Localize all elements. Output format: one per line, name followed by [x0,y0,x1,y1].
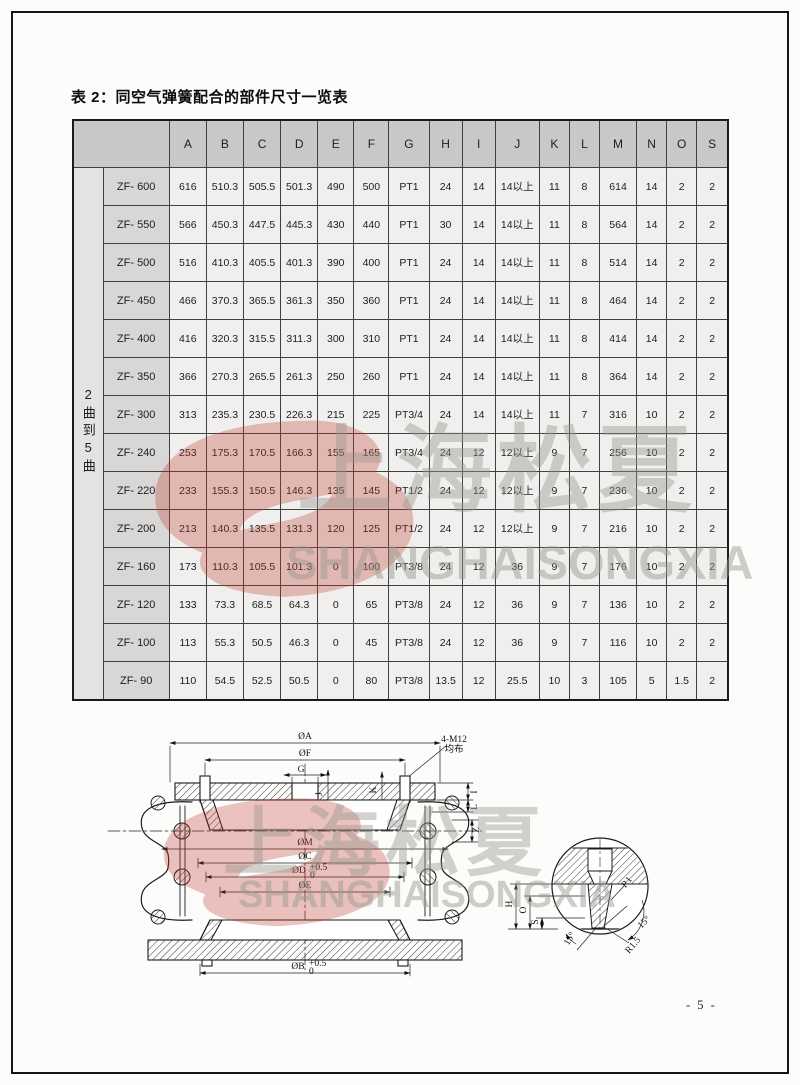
detail-label-angle1: 15° [562,930,578,947]
model-cell: ZF- 240 [103,434,169,472]
data-cell: 36 [495,548,539,586]
data-cell: 2 [667,396,697,434]
table-row: 2曲到5曲ZF- 600616510.3505.5501.3490500PT12… [73,168,728,206]
data-cell: 501.3 [281,168,318,206]
data-cell: 14以上 [495,168,539,206]
data-cell: 315.5 [243,320,280,358]
data-cell: 2 [667,548,697,586]
data-cell: PT1/2 [389,510,429,548]
data-cell: 110.3 [206,548,243,586]
dim-label-l: L [470,804,480,810]
data-cell: 54.5 [206,662,243,701]
data-cell: 8 [569,282,599,320]
data-cell: 464 [599,282,636,320]
data-cell: 14 [637,358,667,396]
data-cell: 2 [667,168,697,206]
data-cell: 9 [539,586,569,624]
table-row: ZF- 160173110.3105.5101.30100PT3/8241236… [73,548,728,586]
data-cell: PT1 [389,244,429,282]
data-cell: 24 [429,586,462,624]
data-cell: 14 [462,320,495,358]
data-cell: 46.3 [281,624,318,662]
data-cell: 2 [667,244,697,282]
data-cell: 12 [462,624,495,662]
dim-label-d-sub: 0 [310,871,315,881]
data-cell: 2 [697,396,728,434]
data-cell: 14 [462,396,495,434]
data-cell: 2 [697,244,728,282]
data-cell: 505.5 [243,168,280,206]
data-cell: 226.3 [281,396,318,434]
dim-label-g: G [298,765,305,775]
data-cell: 10 [637,624,667,662]
data-cell: 116 [599,624,636,662]
data-cell: 366 [169,358,206,396]
data-cell: 350 [318,282,354,320]
table-row: ZF- 10011355.350.546.3045PT3/82412369711… [73,624,728,662]
col-header: C [243,120,280,168]
data-cell: 215 [318,396,354,434]
data-cell: 24 [429,282,462,320]
data-cell: 310 [354,320,389,358]
data-cell: 311.3 [281,320,318,358]
data-cell: 10 [637,472,667,510]
bellows-left [141,796,192,924]
data-cell: 7 [569,396,599,434]
dim-label-i: I [470,790,480,793]
data-cell: 2 [667,434,697,472]
data-cell: 14 [637,282,667,320]
data-cell: 14 [637,244,667,282]
col-header: D [281,120,318,168]
data-cell: 73.3 [206,586,243,624]
data-cell: 313 [169,396,206,434]
data-cell: 11 [539,320,569,358]
data-cell: 466 [169,282,206,320]
data-cell: 410.3 [206,244,243,282]
data-cell: 10 [637,396,667,434]
data-cell: 230.5 [243,396,280,434]
data-cell: 7 [569,434,599,472]
dim-label-m: ØM [297,838,313,848]
data-cell: 401.3 [281,244,318,282]
col-header: F [354,120,389,168]
table-row: ZF- 300313235.3230.5226.3215225PT3/42414… [73,396,728,434]
data-cell: 3 [569,662,599,701]
data-cell: 320.3 [206,320,243,358]
data-cell: PT3/8 [389,662,429,701]
data-cell: 135 [318,472,354,510]
model-cell: ZF- 120 [103,586,169,624]
data-cell: PT3/4 [389,396,429,434]
data-cell: 30 [429,206,462,244]
data-cell: 235.3 [206,396,243,434]
bolt-note-line1: 4-M12 [441,735,467,745]
data-cell: 14以上 [495,206,539,244]
data-cell: 2 [667,320,697,358]
data-cell: 68.5 [243,586,280,624]
data-cell: 140.3 [206,510,243,548]
data-cell: 175.3 [206,434,243,472]
data-cell: 8 [569,320,599,358]
data-cell: 0 [318,662,354,701]
data-cell: PT1 [389,168,429,206]
data-cell: 360 [354,282,389,320]
data-cell: 155.3 [206,472,243,510]
data-cell: 14 [462,244,495,282]
data-cell: 2 [667,586,697,624]
col-header: O [667,120,697,168]
bolt-note-line2: 均布 [444,743,463,755]
model-cell: ZF- 500 [103,244,169,282]
data-cell: 0 [318,624,354,662]
data-cell: 10 [539,662,569,701]
data-cell: 5 [637,662,667,701]
data-cell: 65 [354,586,389,624]
dim-label-e: ØE [299,881,312,891]
data-cell: 2 [667,206,697,244]
detail-label-r15: R1.5 [624,935,644,956]
model-cell: ZF- 550 [103,206,169,244]
data-cell: 45 [354,624,389,662]
data-cell: 25.5 [495,662,539,701]
data-cell: 36 [495,624,539,662]
data-cell: 270.3 [206,358,243,396]
model-cell: ZF- 400 [103,320,169,358]
table-row: ZF- 450466370.3365.5361.3350360PT1241414… [73,282,728,320]
data-cell: 52.5 [243,662,280,701]
data-cell: 12 [462,472,495,510]
dim-label-z: Z [472,827,482,833]
row-group-label-text: 2曲到5曲 [79,387,98,476]
data-cell: 510.3 [206,168,243,206]
row-group-label: 2曲到5曲 [73,168,103,701]
data-cell: 370.3 [206,282,243,320]
data-cell: 9 [539,624,569,662]
data-cell: 101.3 [281,548,318,586]
data-cell: 12以上 [495,510,539,548]
data-cell: 2 [697,624,728,662]
data-cell: 516 [169,244,206,282]
data-cell: 2 [667,282,697,320]
data-cell: 9 [539,548,569,586]
data-cell: 9 [539,472,569,510]
model-cell: ZF- 100 [103,624,169,662]
data-cell: 10 [637,434,667,472]
data-cell: 120 [318,510,354,548]
data-cell: 24 [429,548,462,586]
data-cell: 7 [569,586,599,624]
data-cell: PT1 [389,282,429,320]
data-cell: 24 [429,320,462,358]
table-row: ZF- 500516410.3405.5401.3390400PT1241414… [73,244,728,282]
col-header: B [206,120,243,168]
data-cell: 1.5 [667,662,697,701]
data-cell: 405.5 [243,244,280,282]
data-cell: 2 [697,586,728,624]
data-cell: 155 [318,434,354,472]
data-cell: 24 [429,358,462,396]
col-header: G [389,120,429,168]
dim-label-j: J [315,792,325,796]
data-cell: 261.3 [281,358,318,396]
air-spring-drawing: ØA ØF G 4-M12 均布 J [80,728,760,983]
data-cell: 390 [318,244,354,282]
data-cell: 14 [637,320,667,358]
data-cell: 614 [599,168,636,206]
data-cell: 2 [697,548,728,586]
col-header: K [539,120,569,168]
data-cell: 11 [539,168,569,206]
data-cell: 7 [569,510,599,548]
data-cell: 110 [169,662,206,701]
data-cell: 236 [599,472,636,510]
data-cell: 12 [462,662,495,701]
data-cell: 213 [169,510,206,548]
col-header: I [462,120,495,168]
model-cell: ZF- 220 [103,472,169,510]
data-cell: 12 [462,586,495,624]
data-cell: 2 [697,282,728,320]
spec-table: ABCDEFGHIJKLMNOS 2曲到5曲ZF- 600616510.3505… [72,119,729,701]
data-cell: 50.5 [281,662,318,701]
page-number: - 5 - [686,998,717,1013]
data-cell: 11 [539,206,569,244]
data-cell: 7 [569,548,599,586]
data-cell: 12以上 [495,434,539,472]
data-cell: 440 [354,206,389,244]
data-cell: 250 [318,358,354,396]
data-cell: 447.5 [243,206,280,244]
data-cell: 24 [429,168,462,206]
data-cell: 265.5 [243,358,280,396]
data-cell: 490 [318,168,354,206]
data-cell: 253 [169,434,206,472]
table-row: ZF- 400416320.3315.5311.3300310PT1241414… [73,320,728,358]
data-cell: 2 [697,434,728,472]
data-cell: 14以上 [495,358,539,396]
data-cell: 2 [697,472,728,510]
data-cell: 400 [354,244,389,282]
data-cell: 7 [569,624,599,662]
dim-label-f: ØF [299,749,311,759]
data-cell: 361.3 [281,282,318,320]
data-cell: 7 [569,472,599,510]
data-cell: 113 [169,624,206,662]
data-cell: 260 [354,358,389,396]
data-cell: 2 [667,624,697,662]
data-cell: 2 [667,510,697,548]
table-row: ZF- 550566450.3447.5445.3430440PT1301414… [73,206,728,244]
data-cell: PT3/8 [389,548,429,586]
data-cell: 24 [429,434,462,472]
data-cell: 125 [354,510,389,548]
data-cell: 316 [599,396,636,434]
bellows-right [418,796,469,924]
data-cell: 135.5 [243,510,280,548]
dim-label-b-sub: 0 [309,967,314,977]
table-row: ZF- 350366270.3265.5261.3250260PT1241414… [73,358,728,396]
data-cell: 2 [697,168,728,206]
col-header: E [318,120,354,168]
data-cell: 170.5 [243,434,280,472]
col-header: S [697,120,728,168]
main-section-view: ØA ØF G 4-M12 均布 J [108,732,482,977]
data-cell: 430 [318,206,354,244]
col-header: J [495,120,539,168]
model-cell: ZF- 350 [103,358,169,396]
data-cell: 300 [318,320,354,358]
model-cell: ZF- 450 [103,282,169,320]
page-title: 表 2：同空气弹簧配合的部件尺寸一览表 [71,86,348,107]
data-cell: 11 [539,396,569,434]
data-cell: 14 [637,206,667,244]
data-cell: 150.5 [243,472,280,510]
table-row: ZF- 200213140.3135.5131.3120125PT1/22412… [73,510,728,548]
data-cell: 24 [429,244,462,282]
corner-cell [73,120,169,168]
data-cell: 0 [318,548,354,586]
data-cell: 11 [539,244,569,282]
data-cell: 365.5 [243,282,280,320]
data-cell: 416 [169,320,206,358]
data-cell: 12 [462,548,495,586]
data-cell: 166.3 [281,434,318,472]
model-cell: ZF- 160 [103,548,169,586]
dim-label-k: K [369,786,379,793]
detail-label-angle2: 15° [636,914,653,931]
data-cell: 8 [569,168,599,206]
data-cell: 131.3 [281,510,318,548]
model-cell: ZF- 600 [103,168,169,206]
detail-label-h: H [505,900,515,907]
data-cell: 80 [354,662,389,701]
data-cell: 64.3 [281,586,318,624]
model-cell: ZF- 300 [103,396,169,434]
data-cell: 2 [667,472,697,510]
data-cell: PT3/4 [389,434,429,472]
dim-label-c: ØC [298,852,311,862]
col-header: A [169,120,206,168]
table-row: ZF- 12013373.368.564.3065PT3/82412369713… [73,586,728,624]
data-cell: 12 [462,434,495,472]
lower-bead-plate [200,920,410,940]
data-cell: 24 [429,624,462,662]
data-cell: 14以上 [495,320,539,358]
data-cell: 14以上 [495,244,539,282]
data-cell: 14 [462,206,495,244]
detail-label-s: S [531,919,541,924]
data-cell: 2 [697,662,728,701]
data-cell: 2 [697,510,728,548]
detail-view: H O S R1 R1.5 15° 15° [505,838,653,956]
catalog-page: 表 2：同空气弹簧配合的部件尺寸一览表 ABCDEFGHIJKLMNOS 2曲到… [0,0,800,1085]
data-cell: 100 [354,548,389,586]
data-cell: 445.3 [281,206,318,244]
data-cell: 10 [637,510,667,548]
data-cell: 50.5 [243,624,280,662]
data-cell: PT1/2 [389,472,429,510]
data-cell: 24 [429,510,462,548]
data-cell: 2 [697,320,728,358]
data-cell: 2 [667,358,697,396]
data-cell: 14以上 [495,396,539,434]
data-cell: 0 [318,586,354,624]
data-cell: 10 [637,586,667,624]
data-cell: 514 [599,244,636,282]
data-cell: 256 [599,434,636,472]
data-cell: 564 [599,206,636,244]
upper-bead-plate [200,800,410,830]
data-cell: 8 [569,358,599,396]
col-header: N [637,120,667,168]
data-cell: 24 [429,396,462,434]
data-cell: 8 [569,244,599,282]
data-cell: 133 [169,586,206,624]
data-cell: 176 [599,548,636,586]
table-body: 2曲到5曲ZF- 600616510.3505.5501.3490500PT12… [73,168,728,701]
data-cell: 105 [599,662,636,701]
data-cell: 8 [569,206,599,244]
data-cell: 233 [169,472,206,510]
data-cell: PT3/8 [389,624,429,662]
model-cell: ZF- 200 [103,510,169,548]
data-cell: 450.3 [206,206,243,244]
col-header: M [599,120,636,168]
data-cell: 24 [429,472,462,510]
data-cell: PT1 [389,206,429,244]
data-cell: 12 [462,510,495,548]
data-cell: 13.5 [429,662,462,701]
data-cell: 105.5 [243,548,280,586]
data-cell: 14 [462,168,495,206]
data-cell: 173 [169,548,206,586]
dim-label-b: ØB [291,962,304,972]
table-row: ZF- 9011054.552.550.5080PT3/813.51225.51… [73,662,728,701]
data-cell: 414 [599,320,636,358]
data-cell: 14 [637,168,667,206]
data-cell: 145 [354,472,389,510]
detail-label-o: O [519,906,529,913]
model-cell: ZF- 90 [103,662,169,701]
data-cell: 500 [354,168,389,206]
data-cell: 225 [354,396,389,434]
data-cell: PT3/8 [389,586,429,624]
spec-table-wrap: ABCDEFGHIJKLMNOS 2曲到5曲ZF- 600616510.3505… [72,119,729,701]
dim-label-a: ØA [298,732,312,742]
dim-label-d: ØD [292,866,306,876]
data-cell: 2 [697,358,728,396]
data-cell: 11 [539,282,569,320]
header-row: ABCDEFGHIJKLMNOS [73,120,728,168]
data-cell: 566 [169,206,206,244]
data-cell: 12以上 [495,472,539,510]
data-cell: 55.3 [206,624,243,662]
data-cell: 14以上 [495,282,539,320]
data-cell: 36 [495,586,539,624]
data-cell: 146.3 [281,472,318,510]
col-header: H [429,120,462,168]
data-cell: 2 [697,206,728,244]
table-row: ZF- 220233155.3150.5146.3135145PT1/22412… [73,472,728,510]
data-cell: 616 [169,168,206,206]
data-cell: 216 [599,510,636,548]
data-cell: 9 [539,510,569,548]
table-row: ZF- 240253175.3170.5166.3155165PT3/42412… [73,434,728,472]
data-cell: 136 [599,586,636,624]
data-cell: 165 [354,434,389,472]
data-cell: 9 [539,434,569,472]
